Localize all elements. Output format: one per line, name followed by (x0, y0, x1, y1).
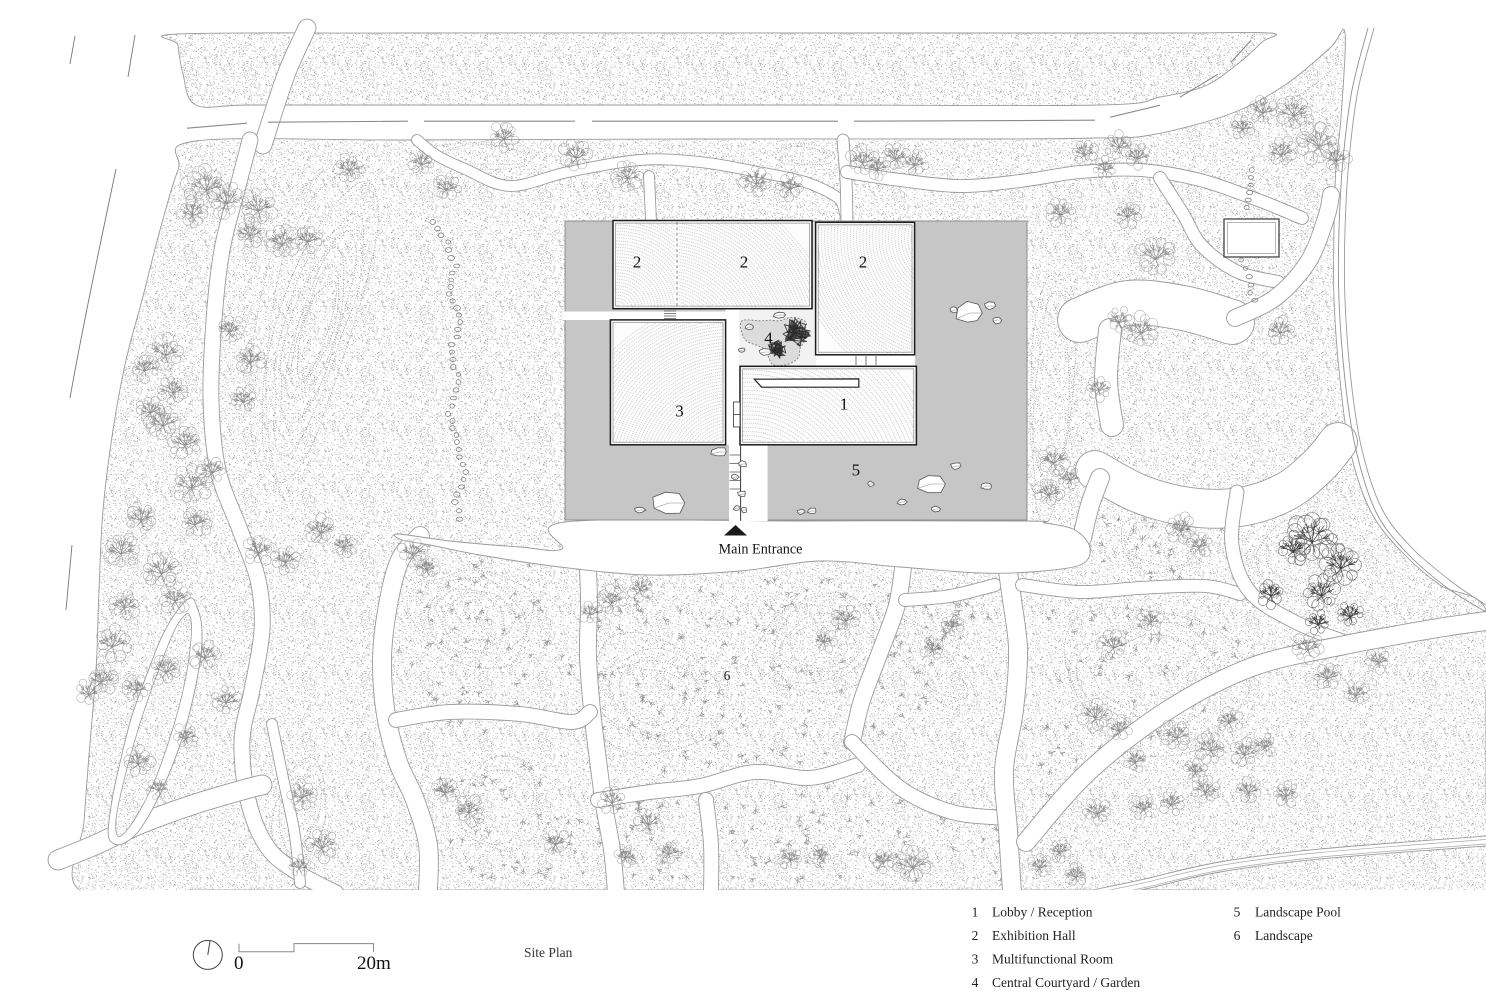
svg-text:1: 1 (840, 395, 849, 414)
svg-text:20m: 20m (357, 953, 391, 974)
svg-text:Exhibition Hall: Exhibition Hall (992, 928, 1076, 943)
svg-text:3: 3 (972, 952, 979, 967)
svg-text:5: 5 (852, 461, 861, 480)
svg-text:2: 2 (859, 253, 868, 272)
svg-text:3: 3 (675, 402, 684, 421)
svg-text:1: 1 (972, 905, 979, 920)
svg-text:6: 6 (1234, 928, 1241, 943)
svg-text:Site Plan: Site Plan (524, 945, 573, 960)
svg-text:Lobby / Reception: Lobby / Reception (992, 905, 1093, 920)
svg-text:2: 2 (740, 253, 749, 272)
svg-text:Multifunctional Room: Multifunctional Room (992, 952, 1114, 967)
svg-text:Landscape: Landscape (1255, 928, 1313, 943)
svg-text:2: 2 (972, 928, 979, 943)
svg-text:4: 4 (764, 329, 773, 348)
svg-text:Landscape Pool: Landscape Pool (1255, 905, 1341, 920)
svg-text:4: 4 (972, 975, 979, 990)
svg-text:Main Entrance: Main Entrance (719, 542, 803, 558)
svg-text:0: 0 (234, 953, 244, 974)
svg-text:Central Courtyard / Garden: Central Courtyard / Garden (992, 975, 1140, 990)
svg-text:6: 6 (724, 668, 731, 683)
svg-text:2: 2 (633, 253, 642, 272)
svg-text:5: 5 (1234, 905, 1241, 920)
